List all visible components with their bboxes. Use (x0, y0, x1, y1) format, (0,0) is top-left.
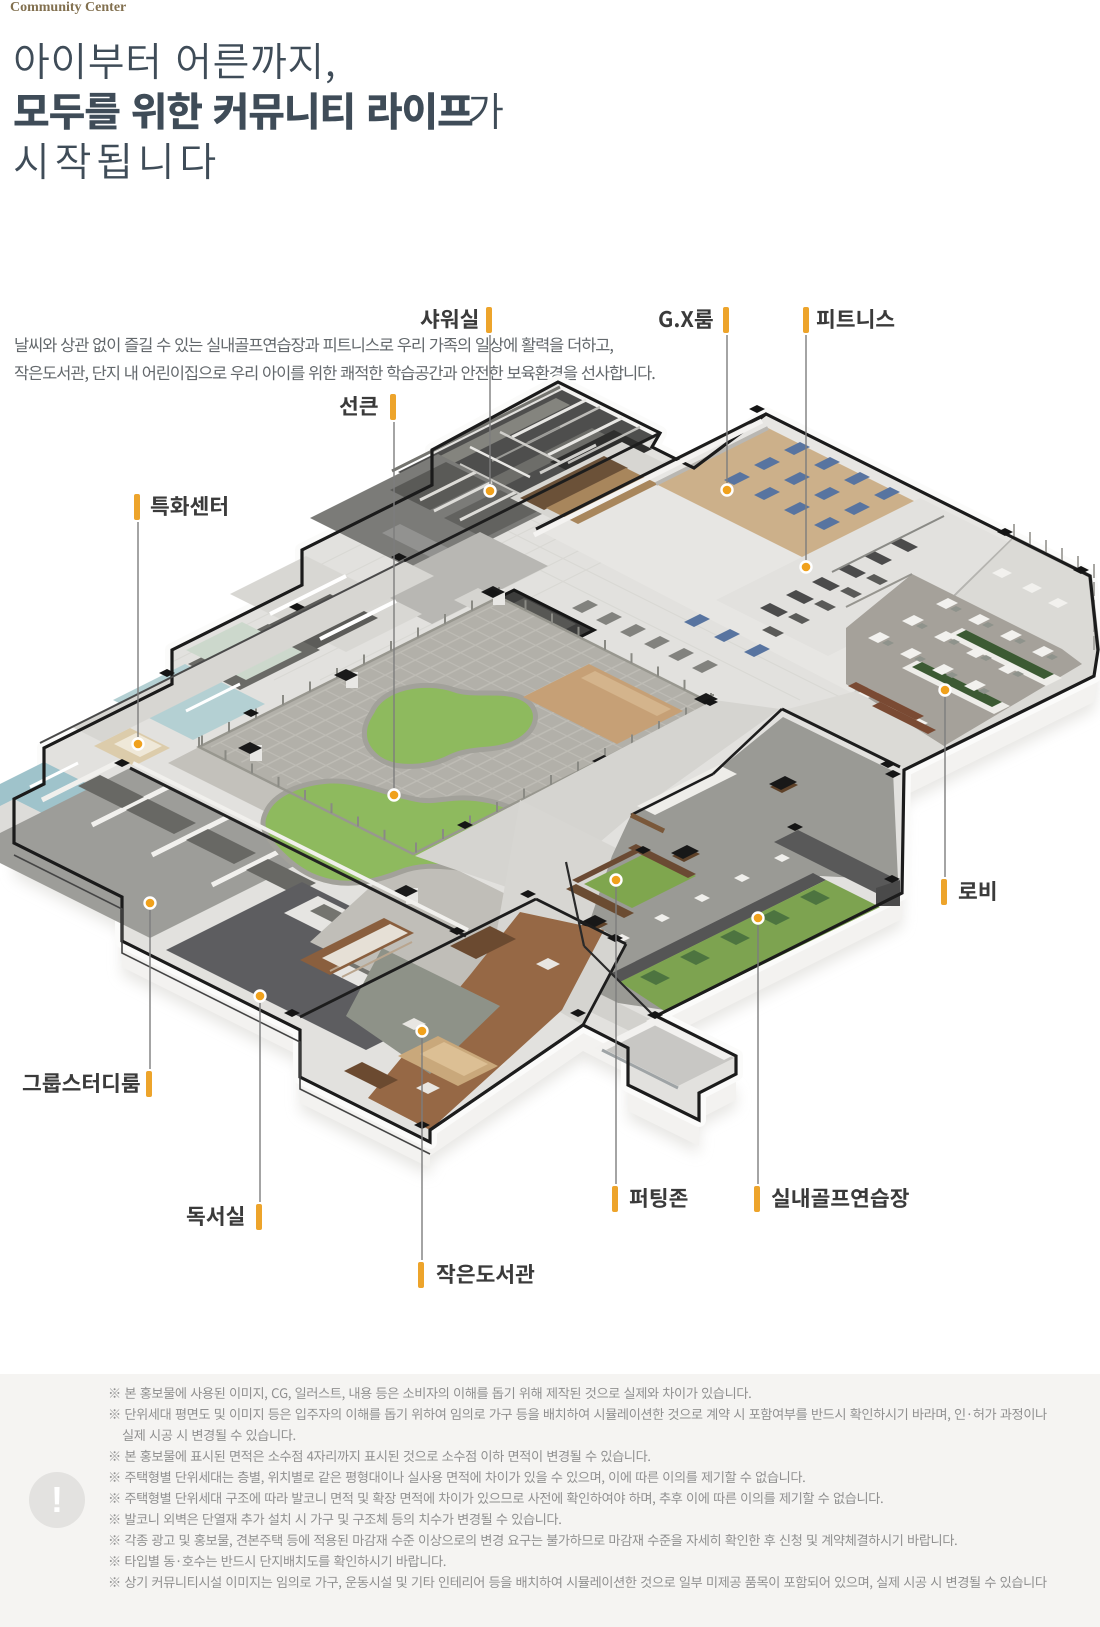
svg-text:Community Center: Community Center (10, 0, 126, 15)
svg-text:!: ! (51, 1479, 63, 1520)
